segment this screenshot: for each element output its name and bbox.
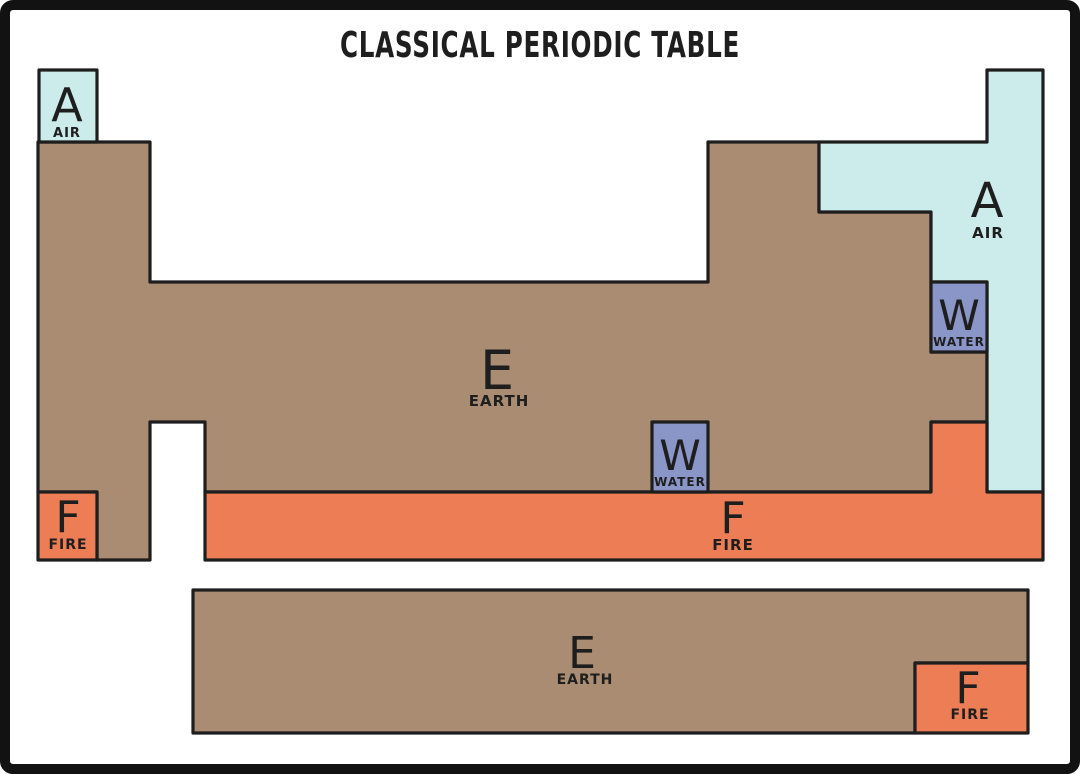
- comic-title: CLASSICAL PERIODIC TABLE: [340, 25, 740, 66]
- main-air-symbol: A: [971, 173, 1004, 229]
- comic-canvas: CLASSICAL PERIODIC TABLE A AIR A AIR E E…: [0, 0, 1080, 774]
- hydrogen-air-label: AIR: [53, 126, 81, 141]
- fblock-fire-label: FIRE: [950, 707, 989, 723]
- francium-fire-label: FIRE: [48, 537, 87, 553]
- period7-fire-label: FIRE: [712, 536, 754, 554]
- bromine-water-label: WATER: [933, 335, 985, 349]
- classical-periodic-table-drawing: CLASSICAL PERIODIC TABLE A AIR A AIR E E…: [0, 0, 1080, 774]
- main-air-label: AIR: [972, 224, 1004, 242]
- francium-fire-symbol: F: [55, 492, 80, 543]
- fblock-earth-label: EARTH: [557, 672, 614, 688]
- hydrogen-air-symbol: A: [51, 78, 83, 132]
- main-earth-label: EARTH: [469, 392, 530, 410]
- mercury-water-label: WATER: [654, 475, 706, 489]
- mercury-water-symbol: W: [659, 431, 701, 480]
- bromine-water-symbol: W: [938, 291, 980, 340]
- fblock-earth-region: [193, 590, 1028, 733]
